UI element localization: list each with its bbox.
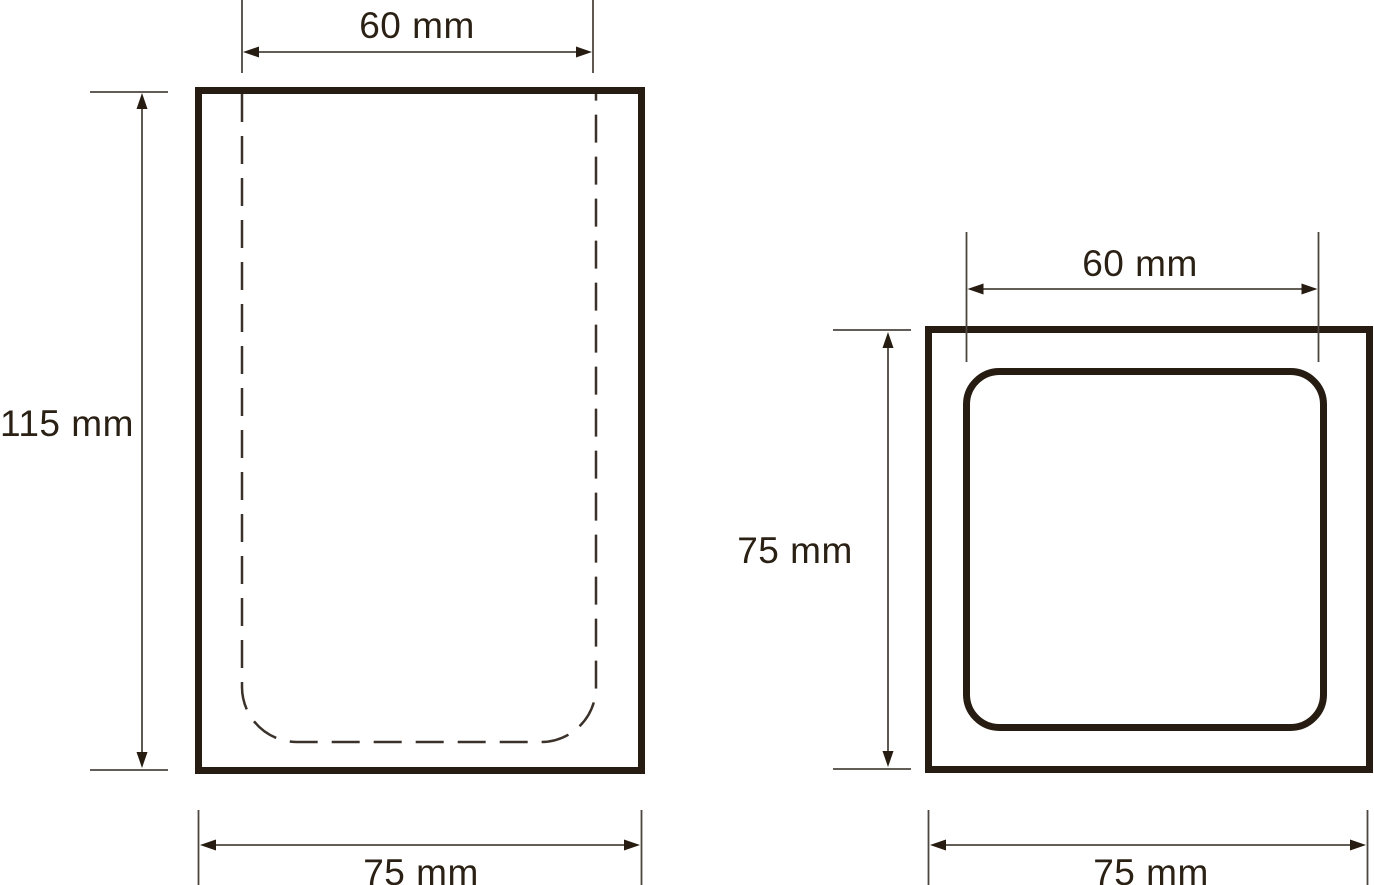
drawing-linework bbox=[0, 0, 1374, 885]
top-view bbox=[833, 232, 1370, 885]
front-view-inner-hidden-outline bbox=[242, 94, 596, 742]
top-view-bottom-dimension-label: 75 mm bbox=[1093, 854, 1209, 885]
top-view-top-dimension-label: 60 mm bbox=[1082, 245, 1198, 282]
top-view-inner-outline bbox=[967, 372, 1324, 728]
arrowhead-right-icon bbox=[1302, 284, 1318, 295]
arrowhead-left-icon bbox=[930, 840, 946, 851]
arrowhead-left-icon bbox=[243, 47, 259, 58]
front-view-left-dimension-label: 115 mm bbox=[0, 405, 126, 442]
top-view-left-dimension-label: 75 mm bbox=[737, 532, 853, 569]
arrowhead-up-icon bbox=[883, 332, 894, 348]
arrowhead-up-icon bbox=[137, 93, 148, 109]
front-view-outer-outline bbox=[199, 91, 642, 771]
arrowhead-down-icon bbox=[137, 752, 148, 768]
arrowhead-left-icon bbox=[968, 284, 984, 295]
front-view-bottom-dimension-label: 75 mm bbox=[363, 854, 479, 885]
arrowhead-down-icon bbox=[883, 751, 894, 767]
arrowhead-right-icon bbox=[1350, 840, 1366, 851]
front-view-top-dimension-label: 60 mm bbox=[359, 7, 475, 44]
arrowhead-right-icon bbox=[576, 47, 592, 58]
front-view bbox=[90, 0, 642, 885]
arrowhead-right-icon bbox=[624, 840, 640, 851]
top-view-outer-outline bbox=[929, 330, 1370, 770]
technical-drawing-canvas: 60 mm 115 mm 75 mm 60 mm 75 mm 75 mm bbox=[0, 0, 1374, 885]
arrowhead-left-icon bbox=[200, 840, 216, 851]
